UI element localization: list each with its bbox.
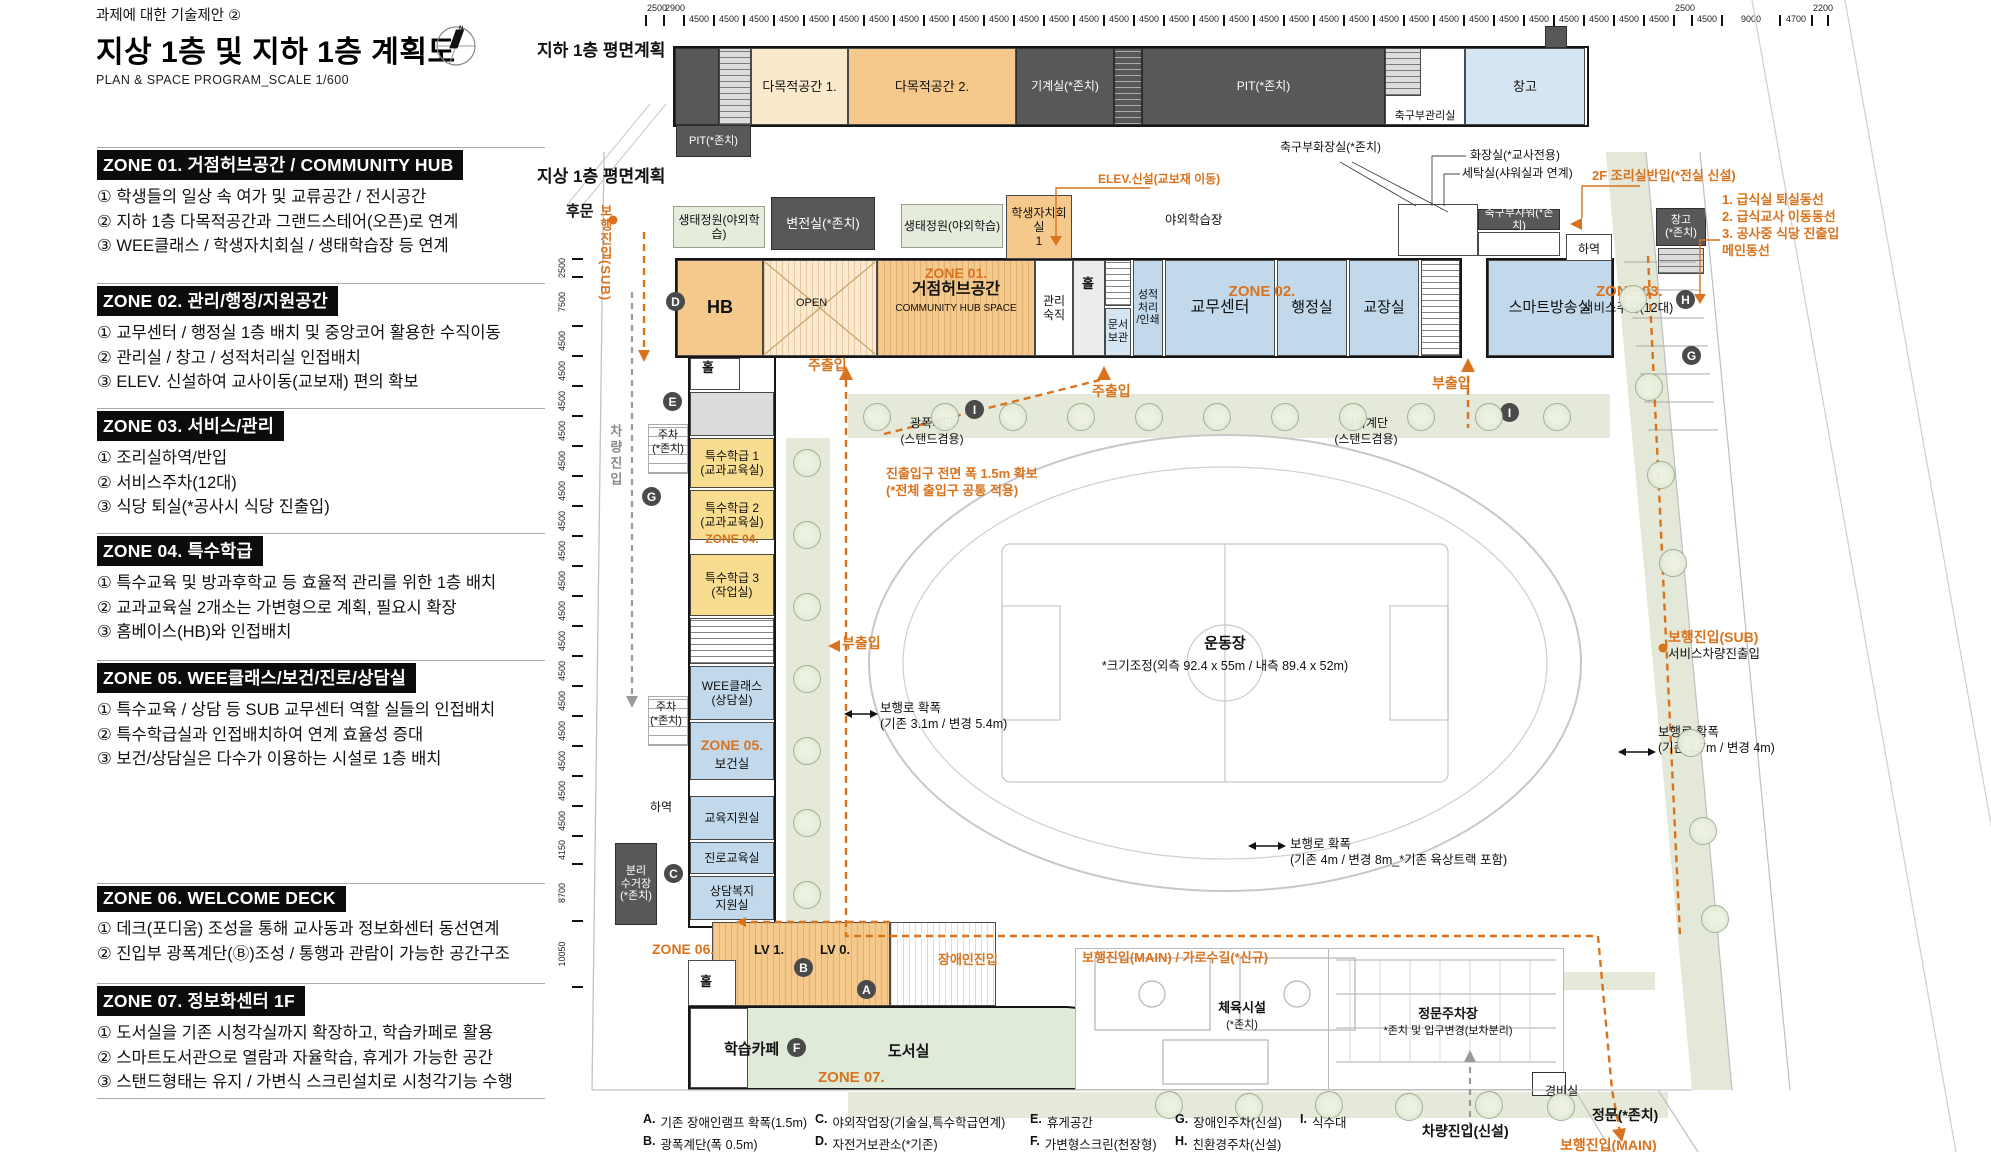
room-label: 특수학급 2 (교과교육실) <box>699 500 764 530</box>
ruler-label: 4500 <box>865 14 893 24</box>
ruler-segment: 4500 <box>572 775 583 805</box>
ruler-label: 4500 <box>1405 14 1433 24</box>
plan-note: 보행로 확폭 (기존 2.7m / 변경 4m) <box>1658 724 1775 757</box>
room: PIT(*존치) <box>1142 48 1385 125</box>
ruler-segment: 4500 <box>1643 15 1673 26</box>
ruler-segment: 4500 <box>1613 15 1643 26</box>
ruler-label: 4500 <box>1495 14 1523 24</box>
plan-note: 보행로 확폭 (기존 3.1m / 변경 5.4m) <box>880 700 1007 733</box>
plan-note: LV 1. <box>754 942 784 959</box>
legend-item: D.자전거보관소(*기존) <box>815 1134 938 1152</box>
plan-note: 주차 (*존치) <box>652 428 684 457</box>
room: 다목적공간 1. <box>751 48 848 125</box>
room-label: WEE클래스 (상담실) <box>701 678 763 708</box>
ruler-label: 4500 <box>557 331 567 351</box>
legend-text: 광폭계단(폭 0.5m) <box>661 1134 758 1152</box>
ruler-segment: 4500 <box>1433 15 1463 26</box>
plan-note: 정문(*존치) <box>1592 1106 1658 1124</box>
plan-note: 체육시설 <box>1218 1000 1266 1017</box>
ruler-label: 4500 <box>1345 14 1373 24</box>
plan-note: 홀 <box>700 974 712 991</box>
ruler-label: 4500 <box>1645 14 1673 24</box>
ruler-tick <box>572 986 583 988</box>
ruler-segment: 4500 <box>1523 15 1553 26</box>
ruler-label: 4500 <box>745 14 773 24</box>
room <box>690 392 774 436</box>
zone-item: ② 서비스주차(12대) <box>97 471 545 496</box>
ruler-label: 4500 <box>557 721 567 741</box>
plan-note: (*존치) <box>1226 1018 1258 1032</box>
ruler-label: 4500 <box>925 14 953 24</box>
ruler-label: 4500 <box>1165 14 1193 24</box>
ruler-segment: 4500 <box>1043 15 1073 26</box>
ruler-segment: 4500 <box>953 15 983 26</box>
ruler-segment: 4500 <box>683 15 713 26</box>
ruler-label: 4500 <box>715 14 743 24</box>
plan-note: 서비스차량진출입 <box>1668 646 1760 662</box>
room: 변전실(*존치) <box>771 197 875 250</box>
room-label: 분리 수거장 (*존치) <box>619 864 653 905</box>
marker-I: I <box>965 400 984 419</box>
room: 창고 (*존치) <box>1656 208 1706 246</box>
plan-note: 보행로 확폭 (기존 4m / 변경 8m_*기존 육상트랙 포함) <box>1290 836 1507 869</box>
ruler-segment: 7500 <box>572 276 583 325</box>
room <box>690 618 774 664</box>
ruler-label: 4500 <box>1525 14 1553 24</box>
tree-icon <box>1407 403 1435 431</box>
ruler-segment: 4500 <box>572 505 583 535</box>
floor-plan-sheet: 과제에 대한 기술제안 ② 지상 1층 및 지하 1층 계획도 PLAN & S… <box>0 0 1991 1152</box>
plan-note: 주출입 <box>808 356 847 374</box>
plan-note: 차량진입(신설) <box>1422 1122 1509 1140</box>
room-label: 진로교육실 <box>703 850 760 866</box>
marker-E: E <box>663 392 682 411</box>
plan-note: ZONE 04. <box>705 532 758 548</box>
ruler-segment: 4500 <box>572 745 583 775</box>
zone-block: ZONE 07. 정보화센터 1F① 도서실을 기존 시청각실까지 확장하고, … <box>97 983 545 1095</box>
room <box>719 48 751 125</box>
ruler-label: 4500 <box>1693 14 1721 24</box>
plan-note: 하역 <box>650 800 672 816</box>
room-label: 교육지원실 <box>703 810 760 826</box>
zone-block: ZONE 02. 관리/행정/지원공간① 교무센터 / 행정실 1층 배치 및 … <box>97 283 545 395</box>
room-label: 행정실 <box>1290 298 1333 318</box>
room-label: 상담복지 지원실 <box>709 883 755 913</box>
ruler-segment: 2500 <box>645 15 663 26</box>
ruler-label: 4500 <box>1315 14 1343 24</box>
zone-item: ① 특수교육 및 방과후학교 등 효율적 관리를 위한 1층 배치 <box>97 571 545 596</box>
plan-note: 야외학습장 <box>1165 212 1223 228</box>
ruler-segment: 4500 <box>863 15 893 26</box>
plan-note: 부출입 <box>842 634 881 652</box>
marker-G: G <box>1682 346 1701 365</box>
tree-icon <box>1339 403 1367 431</box>
ruler-label: 2200 <box>1813 3 1827 13</box>
ruler-label: 4500 <box>557 481 567 501</box>
plan-note: 후문 <box>566 202 594 222</box>
ruler-segment: 4500 <box>1313 15 1343 26</box>
room: 행정실 <box>1277 260 1347 356</box>
legend-text: 장애인주차(신설) <box>1193 1112 1282 1131</box>
room: 분리 수거장 (*존치) <box>615 843 657 925</box>
ruler-label: 4500 <box>557 391 567 411</box>
tree-icon <box>1135 403 1163 431</box>
room-label: 특수학급 3 (작업실) <box>704 570 760 600</box>
ruler-segment: 4500 <box>1163 15 1193 26</box>
room-label: 생태정원(야외학습) <box>674 212 764 242</box>
plan-note: 보행진입(MAIN) / 가로수길(*신규) <box>1082 950 1268 967</box>
plan-note: *존치 및 입구변경(보차분리) <box>1383 1024 1512 1038</box>
zone-block: ZONE 05. WEE클래스/보건/진로/상담실① 특수교육 / 상담 등 S… <box>97 660 545 772</box>
room <box>1073 260 1105 356</box>
tree-icon <box>1271 403 1299 431</box>
room-label: 축구부관리실 <box>1394 109 1457 124</box>
room: 다목적공간 2. <box>848 48 1016 125</box>
zone-header: ZONE 07. 정보화센터 1F <box>97 986 305 1016</box>
plan-note: 장애인진입 <box>938 952 998 969</box>
ruler-label: 4500 <box>557 631 567 651</box>
plan-note: 화장실(*교사전용) <box>1470 148 1560 164</box>
legend-key: H. <box>1175 1134 1188 1152</box>
legend-text: 식수대 <box>1312 1112 1347 1131</box>
room-label: 스마트방송실 <box>1508 298 1593 318</box>
zone-block: ZONE 04. 특수학급① 특수교육 및 방과후학교 등 효율적 관리를 위한… <box>97 533 545 645</box>
ruler-label: 4500 <box>805 14 833 24</box>
plan-note: 도서실 <box>888 1042 929 1062</box>
ruler-segment: 4500 <box>572 415 583 445</box>
ruler-segment: 4500 <box>743 15 773 26</box>
ruler-segment: 9000 <box>1721 15 1779 26</box>
marker-F: F <box>787 1038 806 1057</box>
legend-item: F.가변형스크린(천장형) <box>1030 1134 1157 1152</box>
zone-item: ① 도서실을 기존 시청각실까지 확장하고, 학습카페로 활용 <box>97 1021 545 1046</box>
ruler-segment: 2200 <box>1811 15 1827 26</box>
ruler-segment: 4500 <box>1193 15 1223 26</box>
room <box>1105 260 1131 306</box>
ruler-label: 4150 <box>557 840 567 860</box>
room <box>1385 48 1421 96</box>
ruler-segment: 4500 <box>1073 15 1103 26</box>
ruler-label: 4500 <box>835 14 863 24</box>
legend-key: C. <box>815 1112 828 1131</box>
legend-text: 휴게공간 <box>1047 1112 1093 1131</box>
room-label: 창고 <box>1512 78 1538 95</box>
plan-note: 지상 1층 평면계획 <box>537 166 665 188</box>
tree-icon <box>793 593 821 621</box>
zone-header: ZONE 03. 서비스/관리 <box>97 411 284 441</box>
plan-note: 거점허브공간 <box>912 280 1000 301</box>
page-subtitle: PLAN & SPACE PROGRAM_SCALE 1/600 <box>96 73 516 87</box>
plan-note: COMMUNITY HUB SPACE <box>895 302 1016 315</box>
ruler-top: 2500290045004500450045004500450045004500… <box>645 14 1829 26</box>
plan-note: 지하 1층 평면계획 <box>537 40 665 62</box>
plan-note: OPEN <box>796 296 827 310</box>
zone-item: ② 특수학급실과 인접배치하여 연계 효율성 증대 <box>97 723 545 748</box>
plan-note: 홀 <box>702 360 714 377</box>
ruler-label: 2500 <box>557 258 567 278</box>
ruler-segment: 4500 <box>1553 15 1583 26</box>
tree-icon <box>793 881 821 909</box>
marker-D: D <box>666 292 685 311</box>
ruler-label: 4500 <box>1585 14 1613 24</box>
tree-icon <box>931 403 959 431</box>
tree-icon <box>1677 729 1705 757</box>
legend-item: H.친환경주차(신설) <box>1175 1134 1281 1152</box>
room: 생태정원(야외학습) <box>673 206 765 248</box>
plan-note: ELEV.신설(교보재 이동) <box>1098 172 1220 188</box>
zone-item: ③ ELEV. 신설하여 교사이동(교보재) 편의 확보 <box>97 370 545 395</box>
plan-note: 홀 <box>1082 276 1094 293</box>
marker-I: I <box>1500 403 1519 422</box>
zone-item: ③ 식당 퇴실(*공사시 식당 진출입) <box>97 495 545 520</box>
ruler-segment: 4700 <box>1779 15 1811 26</box>
plan-note: 보행진입(SUB) <box>596 204 613 301</box>
zone-block: ZONE 01. 거점허브공간 / COMMUNITY HUB① 학생들의 일상… <box>97 147 545 259</box>
room: HB <box>677 260 763 356</box>
ruler-label: 4500 <box>557 601 567 621</box>
room <box>1398 204 1478 256</box>
plan-note: ZONE 02. <box>1229 282 1296 302</box>
plan-note: 진출입구 전면 폭 1.5m 확보 (*전체 출입구 공통 적용) <box>886 466 1038 500</box>
zone-item: ② 지하 1층 다목적공간과 그랜드스테어(오픈)로 연계 <box>97 210 545 235</box>
ruler-label: 2500 <box>647 3 663 13</box>
room-label: 특수학급 1 (교과교육실) <box>699 448 764 478</box>
plan-note: 차량진입 <box>606 424 623 488</box>
zone-item: ③ 보건/상담실은 다수가 이용하는 시설로 1층 배치 <box>97 747 545 772</box>
ruler-label: 9000 <box>1723 14 1779 24</box>
ruler-segment: 2500 <box>572 258 583 276</box>
ruler-label: 4500 <box>1195 14 1223 24</box>
legend-text: 야외작업장(기술실,특수학급연계) <box>833 1112 1006 1131</box>
marker-A: A <box>857 980 876 999</box>
zone-block: ZONE 06. WELCOME DECK① 데크(포디움) 조성을 통해 교사… <box>97 883 545 966</box>
ruler-label: 4500 <box>1555 14 1583 24</box>
room-label: PIT(*존치) <box>1236 78 1291 94</box>
tree-icon <box>1701 905 1729 933</box>
ruler-segment: 4500 <box>572 595 583 625</box>
room: 문서 보관 <box>1105 308 1131 356</box>
ruler-segment: 4500 <box>1691 15 1721 26</box>
room: 상담복지 지원실 <box>690 876 774 920</box>
zone-block: ZONE 03. 서비스/관리① 조리실하역/반입② 서비스주차(12대)③ 식… <box>97 408 545 520</box>
ruler-label: 2500 <box>1675 3 1691 13</box>
ruler-segment: 4500 <box>1013 15 1043 26</box>
marker-G: G <box>642 487 661 506</box>
room-label: 생태정원(야외학습) <box>903 218 1001 234</box>
legend-key: B. <box>643 1134 656 1152</box>
plan-note: 세탁실(샤워실과 연계) <box>1462 166 1573 182</box>
plan-note: 정문주차장 <box>1418 1006 1478 1023</box>
zone-header: ZONE 02. 관리/행정/지원공간 <box>97 286 338 316</box>
plan-note: ZONE 06. <box>652 940 714 958</box>
room <box>1114 48 1142 125</box>
room-label: 변전실(*존치) <box>785 215 861 232</box>
ruler-segment: 8700 <box>572 863 583 920</box>
ruler-segment: 4500 <box>572 445 583 475</box>
ruler-label: 4500 <box>985 14 1013 24</box>
plan-note: ZONE 07. <box>818 1068 885 1088</box>
ruler-label: 4500 <box>775 14 803 24</box>
plan-note: ZONE 05. <box>701 736 763 754</box>
tree-icon <box>1635 373 1663 401</box>
plan-note: 주차 (*존치) <box>650 700 682 729</box>
plan-note: 부출입 <box>1432 374 1471 392</box>
ruler-label: 4500 <box>557 811 567 831</box>
tree-icon <box>1659 549 1687 577</box>
legend-text: 친환경주차(신설) <box>1193 1134 1282 1152</box>
ruler-label: 4500 <box>557 451 567 471</box>
ruler-segment: 4500 <box>833 15 863 26</box>
zone-item: ① 조리실하역/반입 <box>97 446 545 471</box>
legend-text: 자전거보관소(*기존) <box>833 1134 938 1152</box>
legend-item: A.기존 장애인램프 확폭(1.5m) <box>643 1112 807 1131</box>
ruler-label: 4500 <box>557 421 567 441</box>
plan-note: 학습카페 <box>724 1040 779 1060</box>
ruler-label: 4500 <box>557 571 567 591</box>
zone-header: ZONE 06. WELCOME DECK <box>97 886 346 912</box>
ruler-segment: 4500 <box>572 805 583 835</box>
ruler-segment: 4500 <box>572 355 583 385</box>
tree-icon <box>1543 403 1571 431</box>
room-label: 기계실(*존치) <box>1030 78 1100 94</box>
room: 학생자치회실 1 <box>1006 195 1072 259</box>
room: WEE클래스 (상담실) <box>690 666 774 720</box>
ruler-segment: 4500 <box>923 15 953 26</box>
ruler-segment: 4500 <box>1373 15 1403 26</box>
ruler-label: 8700 <box>557 882 567 902</box>
plan-note: *크기조정(외측 92.4 x 55m / 내측 89.4 x 52m) <box>1102 658 1348 674</box>
north-compass-icon: N <box>432 22 480 70</box>
plan-note: LV 0. <box>820 942 850 959</box>
zone-item: ① 학생들의 일상 속 여가 및 교류공간 / 전시공간 <box>97 185 545 210</box>
svg-text:N: N <box>459 26 463 32</box>
ruler-segment: 4500 <box>572 655 583 685</box>
ruler-segment: 4500 <box>1133 15 1163 26</box>
legend-text: 기존 장애인램프 확폭(1.5m) <box>661 1112 808 1131</box>
ruler-segment: 4500 <box>1493 15 1523 26</box>
ruler-label: 4500 <box>557 661 567 681</box>
ruler-segment: 4500 <box>1403 15 1433 26</box>
tree-icon <box>1647 461 1675 489</box>
room <box>1421 260 1460 356</box>
zone-item: ③ WEE클래스 / 학생자치회실 / 생태학습장 등 연계 <box>97 234 545 259</box>
room-label: 하역 <box>1577 241 1601 257</box>
zone-item: ② 진입부 광폭계단(Ⓑ)조성 / 통행과 관람이 가능한 공간구조 <box>97 942 545 967</box>
room <box>688 960 736 1006</box>
room: 교장실 <box>1349 260 1419 356</box>
tree-icon <box>793 665 821 693</box>
room: 관리 숙직 <box>1035 260 1073 356</box>
tree-icon <box>793 521 821 549</box>
room: 창고 <box>1465 48 1585 125</box>
ruler-segment: 4500 <box>1223 15 1253 26</box>
tree-icon <box>1395 1093 1423 1121</box>
ruler-segment: 4500 <box>572 715 583 745</box>
legend-item: B.광폭계단(폭 0.5m) <box>643 1134 758 1152</box>
ruler-tick <box>1827 15 1829 26</box>
ruler-label: 4500 <box>895 14 923 24</box>
legend-item: E.휴게공간 <box>1030 1112 1093 1131</box>
ruler-segment: 4500 <box>572 385 583 415</box>
ruler-segment: 4500 <box>1463 15 1493 26</box>
ruler-label: 4500 <box>1075 14 1103 24</box>
zone-header: ZONE 04. 특수학급 <box>97 536 263 566</box>
ruler-label: 4500 <box>557 511 567 531</box>
ruler-label: 4500 <box>1375 14 1403 24</box>
tree-icon <box>999 403 1027 431</box>
ruler-segment: 4500 <box>1343 15 1373 26</box>
tree-icon <box>1547 1093 1575 1121</box>
legend-item: C.야외작업장(기술실,특수학급연계) <box>815 1112 1005 1131</box>
zone-item: ③ 홈베이스(HB)와 인접배치 <box>97 620 545 645</box>
ruler-segment: 4500 <box>572 535 583 565</box>
ruler-label: 7500 <box>557 291 567 311</box>
ruler-label: 4700 <box>1781 14 1811 24</box>
ruler-label: 4500 <box>1105 14 1133 24</box>
legend-key: E. <box>1030 1112 1042 1131</box>
plan-note: 축구부화장실(*존치) <box>1280 140 1381 156</box>
tree-icon <box>863 403 891 431</box>
room-label: 관리 숙직 <box>1042 293 1066 323</box>
tree-icon <box>1619 285 1647 313</box>
ruler-label: 4500 <box>557 751 567 771</box>
ruler-label: 10050 <box>557 941 567 966</box>
ruler-segment: 2500 <box>1673 15 1691 26</box>
room: 성적 처리 /인쇄 <box>1133 260 1163 356</box>
ruler-left: 2500750045004500450045004500450045004500… <box>572 258 583 988</box>
room: 교육지원실 <box>690 796 774 840</box>
plan-note: 1. 급식실 퇴실동선 2. 급식교사 이동동선 3. 공사중 식당 진출입 메… <box>1722 192 1839 260</box>
ruler-label: 4500 <box>1255 14 1283 24</box>
legend-key: F. <box>1030 1134 1040 1152</box>
legend-item: G.장애인주차(신설) <box>1175 1112 1282 1131</box>
zone-item: ② 교과교육실 2개소는 가변형으로 계획, 필요시 확장 <box>97 596 545 621</box>
room-label: 창고 (*존치) <box>1664 213 1698 241</box>
legend-text: 가변형스크린(천장형) <box>1045 1134 1157 1152</box>
ruler-segment: 4150 <box>572 835 583 863</box>
ruler-label: 2900 <box>665 3 683 13</box>
room-label: 다목적공간 1. <box>761 78 837 95</box>
tree-icon <box>793 809 821 837</box>
ruler-label: 4500 <box>557 541 567 561</box>
room: 특수학급 3 (작업실) <box>690 554 774 616</box>
zone-item: ② 스마트도서관으로 열람과 자율학습, 휴게가 가능한 공간 <box>97 1046 545 1071</box>
room: 축구부샤워(*존치) <box>1478 209 1560 230</box>
zone-item: ③ 스탠드형태는 유지 / 가변식 스크린설치로 시청각기능 수행 <box>97 1070 545 1095</box>
ruler-segment: 4500 <box>773 15 803 26</box>
tree-icon <box>1203 403 1231 431</box>
zone-header: ZONE 05. WEE클래스/보건/진로/상담실 <box>97 663 416 693</box>
ruler-segment: 4500 <box>572 565 583 595</box>
tree-icon <box>1067 403 1095 431</box>
tree-icon <box>793 449 821 477</box>
ruler-label: 4500 <box>557 361 567 381</box>
ruler-segment: 4500 <box>572 325 583 355</box>
ruler-segment: 4500 <box>803 15 833 26</box>
ruler-segment: 4500 <box>713 15 743 26</box>
room: 생태정원(야외학습) <box>901 204 1003 248</box>
room-label: 문서 보관 <box>1107 318 1129 346</box>
ruler-segment: 4500 <box>1253 15 1283 26</box>
room-label: 교장실 <box>1362 298 1405 318</box>
ruler-label: 4500 <box>1435 14 1463 24</box>
tree-icon <box>1475 403 1503 431</box>
plan-note: 보행진입(MAIN) <box>1560 1136 1657 1152</box>
ruler-label: 4500 <box>557 691 567 711</box>
room <box>1478 232 1560 256</box>
ruler-label: 4500 <box>1045 14 1073 24</box>
ruler-segment: 4500 <box>572 625 583 655</box>
